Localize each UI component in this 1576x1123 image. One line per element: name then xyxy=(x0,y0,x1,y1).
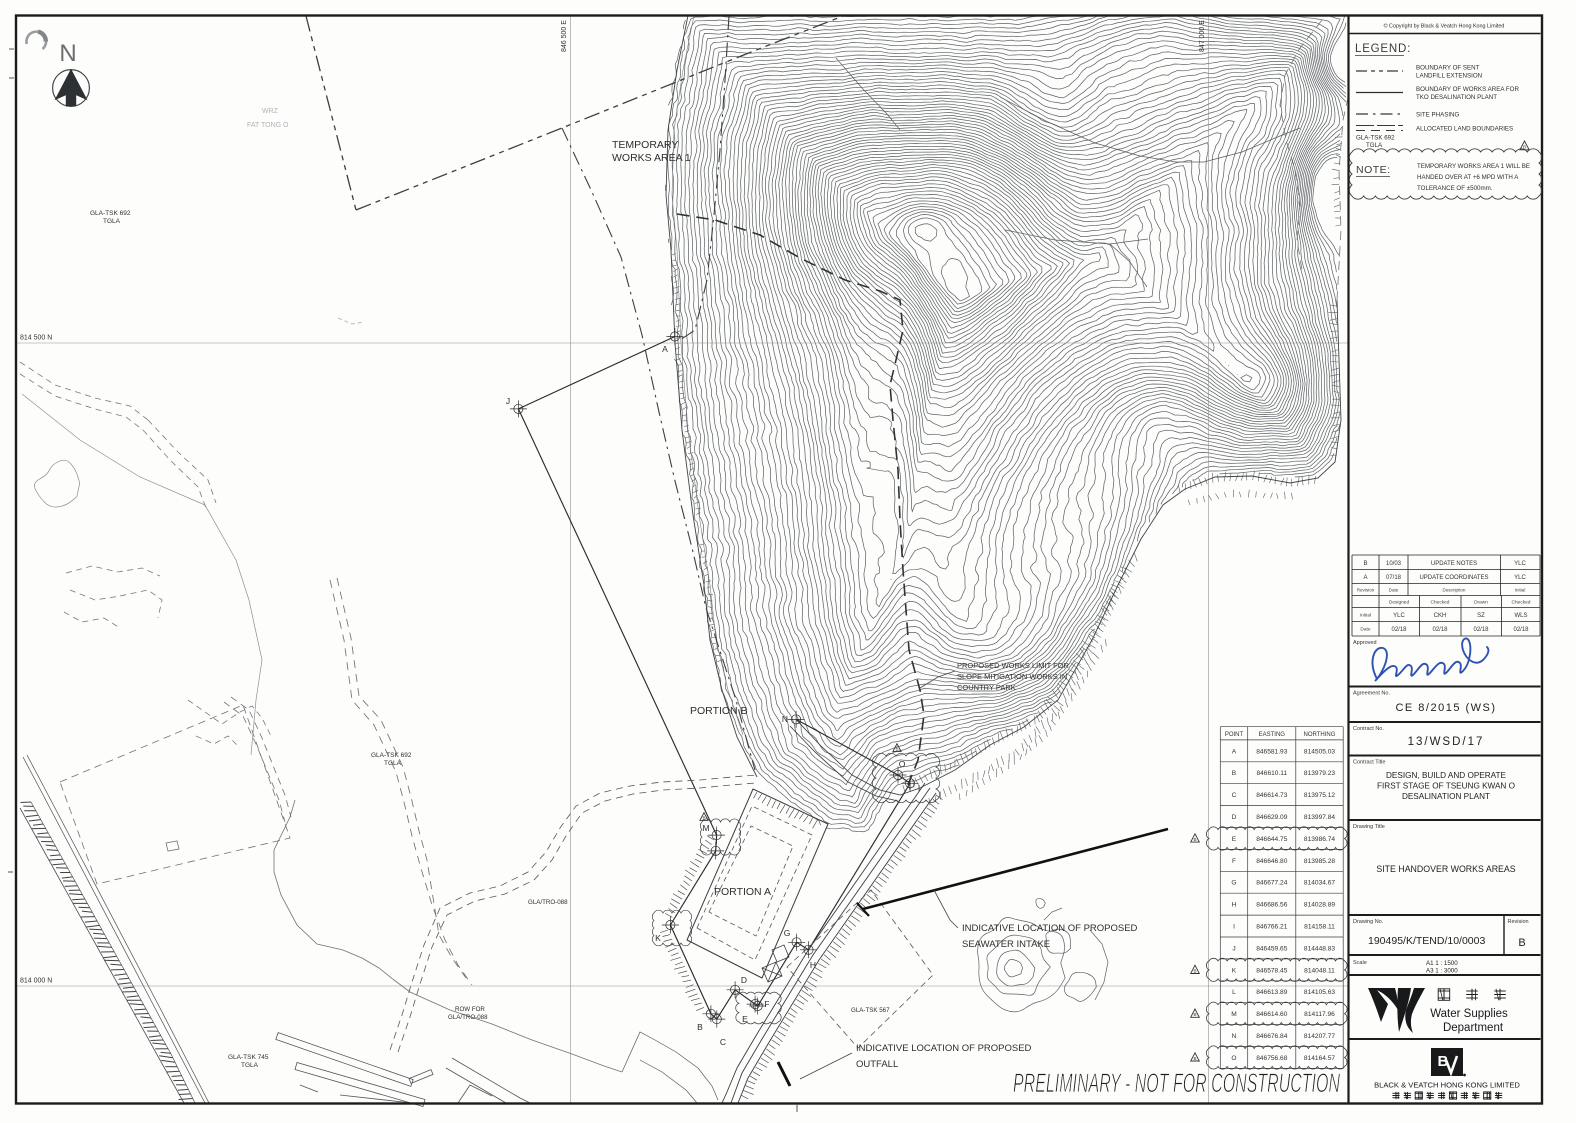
svg-text:846766.21: 846766.21 xyxy=(1256,924,1288,931)
svg-text:190495/K/TEND/10/0003: 190495/K/TEND/10/0003 xyxy=(1368,935,1485,947)
svg-text:TOLERANCE OF ±500mm.: TOLERANCE OF ±500mm. xyxy=(1417,185,1493,192)
svg-text:FIRST STAGE OF TSEUNG KWAN O: FIRST STAGE OF TSEUNG KWAN O xyxy=(1377,782,1515,791)
svg-text:02/18: 02/18 xyxy=(1473,627,1489,633)
svg-text:846581.93: 846581.93 xyxy=(1256,748,1288,755)
svg-text:814164.57: 814164.57 xyxy=(1304,1055,1336,1062)
svg-text:UPDATE NOTES: UPDATE NOTES xyxy=(1431,561,1477,567)
svg-text:H: H xyxy=(1232,902,1237,909)
svg-text:M: M xyxy=(702,823,709,833)
svg-text:846459.65: 846459.65 xyxy=(1256,945,1288,952)
svg-text:PROPOSED WORKS LIMIT FOR: PROPOSED WORKS LIMIT FOR xyxy=(957,661,1070,670)
svg-text:813985.28: 813985.28 xyxy=(1304,858,1336,865)
svg-text:846644.75: 846644.75 xyxy=(1256,836,1288,843)
svg-text:846614.60: 846614.60 xyxy=(1256,1011,1288,1018)
svg-text:846610.11: 846610.11 xyxy=(1256,770,1287,777)
svg-text:813979.23: 813979.23 xyxy=(1304,770,1336,777)
svg-text:813997.84: 813997.84 xyxy=(1304,814,1336,821)
svg-text:INDICATIVE LOCATION OF PROPOSE: INDICATIVE LOCATION OF PROPOSED xyxy=(962,923,1138,934)
svg-text:B: B xyxy=(1232,770,1237,777)
svg-text:POINT: POINT xyxy=(1225,732,1244,738)
svg-text:COUNTRY PARK: COUNTRY PARK xyxy=(957,683,1016,692)
svg-text:PORTION B: PORTION B xyxy=(690,705,748,717)
svg-text:B: B xyxy=(1193,968,1196,973)
svg-text:846646.80: 846646.80 xyxy=(1256,858,1288,865)
svg-text:BOUNDARY OF WORKS AREA FOR: BOUNDARY OF WORKS AREA FOR xyxy=(1416,86,1519,93)
svg-text:TGLA: TGLA xyxy=(1366,142,1383,149)
svg-text:Checked: Checked xyxy=(1431,600,1450,606)
svg-text:O: O xyxy=(1231,1055,1236,1062)
svg-text:Date: Date xyxy=(1389,588,1399,593)
svg-text:Drawn: Drawn xyxy=(1474,600,1488,606)
svg-text:B: B xyxy=(1193,1056,1196,1061)
svg-text:WRZ: WRZ xyxy=(262,108,279,115)
svg-text:Water Supplies: Water Supplies xyxy=(1430,1008,1508,1020)
svg-text:YLC: YLC xyxy=(1514,561,1526,567)
svg-text:814158.11: 814158.11 xyxy=(1304,924,1335,931)
svg-text:PORTION A: PORTION A xyxy=(714,886,771,898)
svg-text:WORKS AREA 1: WORKS AREA 1 xyxy=(612,152,691,164)
svg-text:B: B xyxy=(1193,837,1196,842)
svg-text:Revision: Revision xyxy=(1508,919,1529,925)
svg-text:GLA-TSK 692: GLA-TSK 692 xyxy=(90,210,131,217)
svg-text:B: B xyxy=(697,1022,703,1032)
svg-text:Department: Department xyxy=(1443,1022,1504,1034)
svg-text:07/18: 07/18 xyxy=(1386,575,1402,581)
svg-text:846677.24: 846677.24 xyxy=(1256,880,1288,887)
svg-text:Designed: Designed xyxy=(1389,600,1410,606)
svg-text:O: O xyxy=(899,759,906,769)
svg-text:C: C xyxy=(720,1037,726,1047)
svg-text:A: A xyxy=(1363,575,1367,581)
svg-text:E: E xyxy=(1232,836,1237,843)
svg-text:Agreement No.: Agreement No. xyxy=(1353,691,1390,697)
svg-text:D: D xyxy=(1232,814,1237,821)
svg-text:GLA/TRO-088: GLA/TRO-088 xyxy=(528,899,568,906)
svg-text:814207.77: 814207.77 xyxy=(1304,1033,1336,1040)
svg-text:SEAWATER INTAKE: SEAWATER INTAKE xyxy=(962,939,1050,950)
svg-text:TGLA: TGLA xyxy=(241,1062,259,1069)
svg-text:INDICATIVE LOCATION OF PROPOSE: INDICATIVE LOCATION OF PROPOSED xyxy=(856,1043,1032,1054)
svg-text:GLA-TSK 692: GLA-TSK 692 xyxy=(1356,135,1395,142)
svg-text:HANDED OVER AT +6 MPD WITH A: HANDED OVER AT +6 MPD WITH A xyxy=(1417,174,1519,181)
svg-text:ALLOCATED LAND BOUNDARIES: ALLOCATED LAND BOUNDARIES xyxy=(1416,126,1513,133)
svg-text:TEMPORARY WORKS AREA 1 WILL BE: TEMPORARY WORKS AREA 1 WILL BE xyxy=(1417,163,1530,170)
svg-text:B: B xyxy=(1518,937,1525,949)
svg-text:NOTE:: NOTE: xyxy=(1356,164,1391,176)
svg-text:CKH: CKH xyxy=(1434,613,1447,619)
svg-text:TGLA: TGLA xyxy=(103,218,121,225)
svg-text:M: M xyxy=(1231,1011,1237,1018)
svg-text:814034.67: 814034.67 xyxy=(1304,880,1336,887)
svg-text:846 500 E: 846 500 E xyxy=(561,20,568,52)
svg-text:L: L xyxy=(1232,989,1236,996)
svg-text:A: A xyxy=(1232,748,1237,755)
svg-text:DESIGN, BUILD AND OPERATE: DESIGN, BUILD AND OPERATE xyxy=(1386,771,1506,780)
svg-text:GLA-TSK 692: GLA-TSK 692 xyxy=(371,752,412,759)
svg-text:814505.03: 814505.03 xyxy=(1304,748,1336,755)
svg-text:© Copyright by Black & Veatc: © Copyright by Black & Veatch Hong Kong … xyxy=(1384,23,1505,30)
svg-text:Initial: Initial xyxy=(1360,613,1371,619)
svg-text:J: J xyxy=(1232,945,1235,952)
svg-text:PRELIMINARY - NOT FOR CONSTR: PRELIMINARY - NOT FOR CONSTRUCTION xyxy=(1013,1068,1340,1098)
svg-text:SITE PHASING: SITE PHASING xyxy=(1416,112,1460,119)
svg-text:A1 1 : 1500: A1 1 : 1500 xyxy=(1426,960,1458,967)
svg-text:F: F xyxy=(1232,858,1236,865)
svg-text:CE 8/2015 (WS): CE 8/2015 (WS) xyxy=(1395,702,1496,714)
svg-text:Drawing No.: Drawing No. xyxy=(1353,919,1384,925)
svg-text:ROW FOR: ROW FOR xyxy=(455,1006,485,1013)
svg-text:FAT TONG O: FAT TONG O xyxy=(247,122,289,129)
svg-text:N: N xyxy=(782,714,788,724)
svg-text:GLA/TRO-088: GLA/TRO-088 xyxy=(448,1014,488,1021)
svg-text:Description: Description xyxy=(1443,588,1466,593)
svg-text:Approved: Approved xyxy=(1353,640,1377,646)
svg-text:BOUNDARY OF SENT: BOUNDARY OF SENT xyxy=(1416,65,1480,72)
svg-text:814117.96: 814117.96 xyxy=(1304,1011,1335,1018)
svg-text:NORTHING: NORTHING xyxy=(1304,732,1336,738)
svg-text:02/18: 02/18 xyxy=(1432,627,1448,633)
svg-text:847 000 E: 847 000 E xyxy=(1199,20,1206,52)
svg-text:846578.45: 846578.45 xyxy=(1256,967,1288,974)
svg-text:846629.09: 846629.09 xyxy=(1256,814,1288,821)
svg-text:02/18: 02/18 xyxy=(1391,627,1407,633)
svg-text:814105.63: 814105.63 xyxy=(1304,989,1336,996)
svg-text:N: N xyxy=(59,40,76,67)
svg-text:B: B xyxy=(702,815,705,820)
svg-text:Contract No.: Contract No. xyxy=(1353,726,1384,732)
svg-text:TEMPORARY: TEMPORARY xyxy=(612,139,678,151)
svg-text:Initial: Initial xyxy=(1515,588,1526,593)
svg-text:A: A xyxy=(662,344,668,354)
svg-text:814048.11: 814048.11 xyxy=(1304,967,1335,974)
svg-text:BLACK & VEATCH HONG KONG LIMIT: BLACK & VEATCH HONG KONG LIMITED xyxy=(1374,1081,1520,1090)
svg-text:DESALINATION PLANT: DESALINATION PLANT xyxy=(1402,792,1490,801)
svg-text:SZ: SZ xyxy=(1477,613,1485,619)
svg-text:814028.89: 814028.89 xyxy=(1304,902,1336,909)
svg-text:GLA-TSK 567: GLA-TSK 567 xyxy=(851,1007,890,1014)
svg-text:TKO DESALINATION PLANT: TKO DESALINATION PLANT xyxy=(1416,94,1497,101)
svg-text:814448.83: 814448.83 xyxy=(1304,945,1336,952)
svg-text:13/WSD/17: 13/WSD/17 xyxy=(1408,736,1485,748)
svg-text:I: I xyxy=(918,783,920,793)
svg-text:Revision: Revision xyxy=(1357,588,1375,593)
svg-text:EASTING: EASTING xyxy=(1259,732,1286,738)
svg-text:OUTFALL: OUTFALL xyxy=(856,1059,898,1070)
svg-text:B: B xyxy=(895,746,898,751)
svg-text:I: I xyxy=(1233,924,1235,931)
svg-text:10/03: 10/03 xyxy=(1386,561,1402,567)
svg-text:Checked: Checked xyxy=(1512,600,1531,606)
svg-text:G: G xyxy=(784,928,791,938)
svg-text:YLC: YLC xyxy=(1514,575,1526,581)
svg-text:TGLA: TGLA xyxy=(384,760,402,767)
svg-text:Scale: Scale xyxy=(1353,960,1367,966)
svg-text:YLC: YLC xyxy=(1393,613,1405,619)
svg-text:B: B xyxy=(1193,1012,1196,1017)
svg-text:813986.74: 813986.74 xyxy=(1304,836,1336,843)
svg-text:LANDFILL EXTENSION: LANDFILL EXTENSION xyxy=(1416,73,1482,80)
svg-text:C: C xyxy=(1232,792,1237,799)
svg-text:UPDATE COORDINATES: UPDATE COORDINATES xyxy=(1419,575,1488,581)
svg-text:Date: Date xyxy=(1360,627,1370,633)
svg-text:814 000 N: 814 000 N xyxy=(20,978,52,985)
svg-text:A3 1 : 3000: A3 1 : 3000 xyxy=(1426,968,1458,975)
svg-text:J: J xyxy=(506,396,510,406)
svg-text:SITE HANDOVER WORKS AREAS: SITE HANDOVER WORKS AREAS xyxy=(1376,864,1515,874)
svg-text:846686.56: 846686.56 xyxy=(1256,902,1288,909)
svg-text:846614.73: 846614.73 xyxy=(1256,792,1288,799)
svg-text:F: F xyxy=(764,999,769,1009)
svg-text:N: N xyxy=(1232,1033,1237,1040)
svg-text:813975.12: 813975.12 xyxy=(1304,792,1336,799)
svg-text:846613.89: 846613.89 xyxy=(1256,989,1288,996)
svg-text:846676.84: 846676.84 xyxy=(1256,1033,1288,1040)
svg-text:H: H xyxy=(810,960,816,970)
svg-text:Drawing Title: Drawing Title xyxy=(1353,824,1385,830)
svg-text:B: B xyxy=(1363,561,1367,567)
svg-text:K: K xyxy=(1232,967,1237,974)
svg-text:02/18: 02/18 xyxy=(1513,627,1529,633)
svg-text:GLA-TSK 745: GLA-TSK 745 xyxy=(228,1054,269,1061)
svg-text:846756.68: 846756.68 xyxy=(1256,1055,1288,1062)
svg-text:K: K xyxy=(655,933,661,943)
svg-text:LEGEND:: LEGEND: xyxy=(1355,43,1411,55)
svg-text:SLOPE MITIGATION WORKS IN: SLOPE MITIGATION WORKS IN xyxy=(957,672,1067,681)
svg-text:D: D xyxy=(741,975,747,985)
svg-text:Contract Title: Contract Title xyxy=(1353,760,1385,766)
svg-text:814 500 N: 814 500 N xyxy=(20,335,52,342)
svg-text:G: G xyxy=(1231,880,1236,887)
svg-text:WLS: WLS xyxy=(1514,613,1527,619)
